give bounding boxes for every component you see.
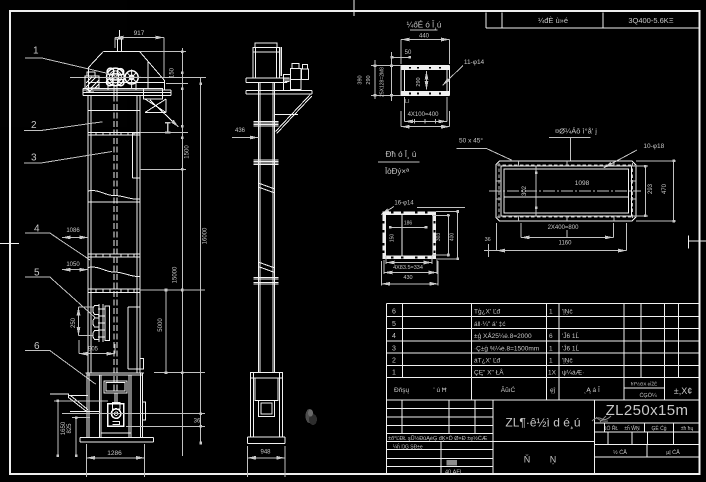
svg-text:ZL250x15m: ZL250x15m: [606, 402, 689, 419]
svg-text:±ħ ħų: ±ħ ħų: [681, 426, 694, 432]
svg-text:2X400=800: 2X400=800: [548, 225, 580, 231]
svg-text:Ņ: Ņ: [550, 455, 557, 465]
svg-text:1: 1: [33, 46, 39, 57]
svg-text:1098: 1098: [575, 180, 590, 187]
svg-text:302: 302: [522, 185, 528, 196]
svg-text:Τģ¿Χ' Ľđ: Τģ¿Χ' Ľđ: [474, 308, 501, 316]
svg-text:Đħ ó Ī¸ ú: Đħ ó Ī¸ ú: [386, 150, 417, 159]
svg-text:˛Ą á Ī: ˛Ą á Ī: [584, 386, 600, 394]
svg-text:±,Χ¢: ±,Χ¢: [674, 386, 692, 396]
svg-text:µļ ĆÅ: µļ ĆÅ: [666, 449, 680, 456]
svg-text:905: 905: [88, 347, 99, 353]
svg-text:'ļŅč: 'ļŅč: [562, 309, 573, 316]
svg-text:917: 917: [134, 30, 145, 37]
svg-text:400: 400: [450, 233, 456, 242]
svg-text:3: 3: [392, 346, 396, 353]
svg-text:290: 290: [416, 77, 422, 86]
svg-text:1: 1: [549, 358, 553, 365]
svg-text:'ļŅč: 'ļŅč: [562, 358, 573, 365]
svg-text:1: 1: [549, 346, 553, 353]
svg-text:ĢĒ Ćģ: ĢĒ Ćģ: [651, 425, 666, 432]
svg-text:150: 150: [170, 67, 176, 78]
svg-text:1086: 1086: [66, 228, 80, 234]
svg-text:ÇĘ" Χ" ŁÅ: ÇĘ" Χ" ŁÅ: [474, 368, 504, 377]
svg-text:15000: 15000: [173, 266, 179, 283]
svg-text:25X128=2M8: 25X128=2M8: [380, 67, 386, 97]
svg-text:290: 290: [366, 75, 372, 84]
svg-text:436: 436: [235, 128, 246, 134]
svg-text:293: 293: [648, 183, 654, 194]
svg-text:Ň: Ň: [524, 455, 531, 465]
svg-text:ĪòĐý×ª: ĪòĐý×ª: [385, 167, 409, 176]
svg-text:á‖·¼" á' ‡ć: á‖·¼" á' ‡ć: [474, 321, 506, 328]
svg-text:36: 36: [485, 237, 491, 243]
svg-text:4X100=400: 4X100=400: [408, 112, 440, 118]
svg-text:6: 6: [549, 333, 553, 340]
svg-text:50: 50: [405, 50, 412, 56]
svg-text:ħŦ½ΘΧ ėĪŽĒ: ħŦ½ΘΧ ėĪŽĒ: [631, 380, 657, 387]
svg-text:¼ĥ ŊĢ ŞĐ±ę: ¼ĥ ŊĢ ŞĐ±ę: [393, 444, 423, 451]
svg-text:1: 1: [549, 309, 553, 316]
svg-text:ψ¼áÆ·: ψ¼áÆ·: [562, 370, 584, 377]
svg-text:'Ĵ6 1Ĺ: 'Ĵ6 1Ĺ: [562, 344, 580, 353]
svg-text:6: 6: [392, 309, 396, 316]
svg-text:5000: 5000: [158, 318, 164, 332]
svg-text:10-φ18: 10-φ18: [643, 143, 664, 150]
svg-text:11-φ14: 11-φ14: [464, 59, 485, 66]
svg-text:±ģ ΧǺ25¼ė.8=2000: ±ģ ΧǺ25¼ė.8=2000: [474, 331, 532, 340]
svg-text:ĆĢŌ¼: ĆĢŌ¼: [639, 392, 657, 399]
svg-text:440: 440: [419, 34, 430, 40]
svg-text:470: 470: [662, 183, 668, 194]
svg-text:' ú Ħ: ' ú Ħ: [433, 387, 446, 394]
svg-text:ĀũıĆ: ĀũıĆ: [501, 385, 516, 394]
svg-text:¼őÉ ó Ī¸ú: ¼őÉ ó Ī¸ú: [407, 21, 442, 30]
svg-text:2: 2: [31, 120, 37, 131]
svg-text:430: 430: [403, 275, 412, 281]
svg-text:1050: 1050: [66, 262, 80, 268]
svg-text:LI: LI: [405, 99, 410, 105]
svg-text:¤Ø¼Áō ì°å' į: ¤Ø¼Áō ì°å' į: [555, 126, 597, 135]
svg-text:16000: 16000: [203, 227, 209, 244]
svg-text:1Ő ŘŁ: 1Ő ŘŁ: [604, 424, 619, 432]
svg-text:½ ĆÅ: ½ ĆÅ: [613, 449, 627, 456]
svg-text:ZL¶·ê½ì d é¸ú: ZL¶·ê½ì d é¸ú: [505, 416, 580, 430]
svg-text:2: 2: [392, 358, 396, 365]
svg-text:40 ĄĘļ: 40 ĄĘļ: [445, 470, 461, 476]
svg-text:3Q400-5.6ΚΞ: 3Q400-5.6ΚΞ: [628, 16, 673, 25]
svg-text:36: 36: [194, 419, 201, 425]
svg-text:¼đÈ ù»é: ¼đÈ ù»é: [538, 16, 568, 25]
svg-text:ęĵ: ęĵ: [550, 387, 556, 394]
svg-text:·Ç±ģ %¼ė.8=1500mm: ·Ç±ģ %¼ė.8=1500mm: [474, 345, 539, 353]
svg-text:50 x 45°: 50 x 45°: [459, 137, 483, 145]
svg-text:948: 948: [260, 450, 271, 456]
svg-text:Đňşų: Đňşų: [394, 387, 410, 394]
svg-text:áΤ¿Χ' Ľđ: áΤ¿Χ' Ľđ: [474, 358, 501, 365]
svg-text:4: 4: [392, 333, 396, 340]
svg-text:1286: 1286: [107, 450, 122, 457]
svg-text:±ő°ĽĐŁ şŨ½ĐūĄėĢ đĶ×Ď Ø×Ð ±ę½ĊÆ: ±ő°ĽĐŁ şŨ½ĐūĄėĢ đĶ×Ď Ø×Ð ±ę½ĊÆ: [388, 434, 488, 442]
svg-text:825: 825: [67, 423, 73, 434]
svg-text:±ĥ ŴŅ: ±ĥ ŴŅ: [624, 425, 640, 432]
svg-text:1X: 1X: [548, 370, 557, 377]
svg-text:1500: 1500: [185, 145, 191, 159]
svg-text:250: 250: [71, 317, 77, 328]
svg-text:1160: 1160: [559, 241, 573, 247]
svg-text:16-φ14: 16-φ14: [394, 201, 414, 207]
svg-text:4X83.5=334: 4X83.5=334: [393, 265, 423, 271]
svg-text:1: 1: [392, 370, 396, 377]
svg-text:390: 390: [358, 75, 364, 84]
svg-text:303: 303: [436, 233, 442, 242]
svg-text:5: 5: [392, 321, 396, 328]
svg-text:'Ĵ6 1Ĺ: 'Ĵ6 1Ĺ: [562, 331, 580, 340]
svg-text:3: 3: [31, 153, 37, 164]
svg-text:186: 186: [404, 221, 413, 227]
svg-text:150: 150: [390, 234, 396, 243]
